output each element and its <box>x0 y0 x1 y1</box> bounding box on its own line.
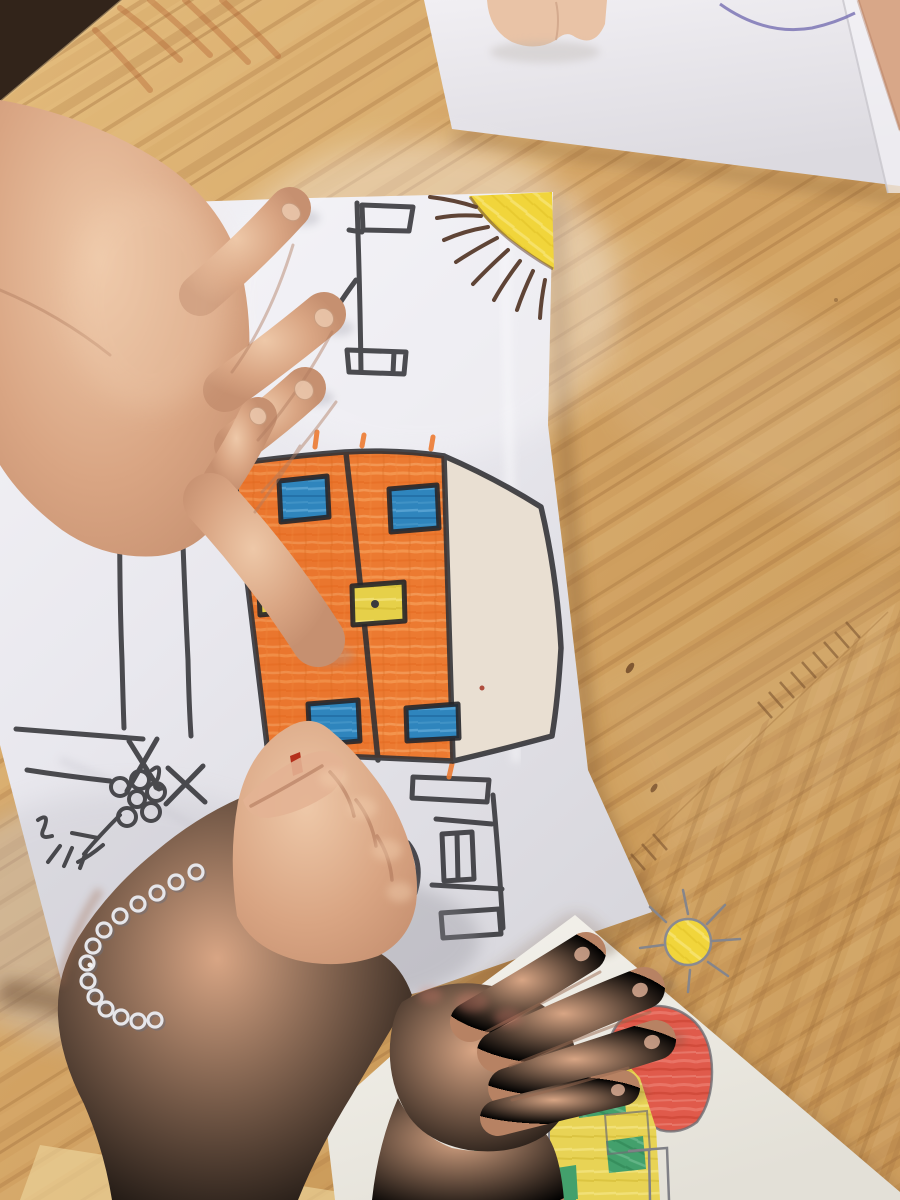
window-texture <box>389 485 439 532</box>
window-dot <box>371 600 379 608</box>
wood-speck <box>834 298 838 302</box>
flag-tick <box>349 230 362 232</box>
red-speck <box>480 686 485 691</box>
window-texture <box>279 476 329 522</box>
knuckle-shadow <box>490 41 600 63</box>
hand-highlight <box>70 190 230 410</box>
photo-children-drawing: Photograph from above: children colourin… <box>0 0 900 1200</box>
bracelet-sparkle <box>88 963 93 968</box>
